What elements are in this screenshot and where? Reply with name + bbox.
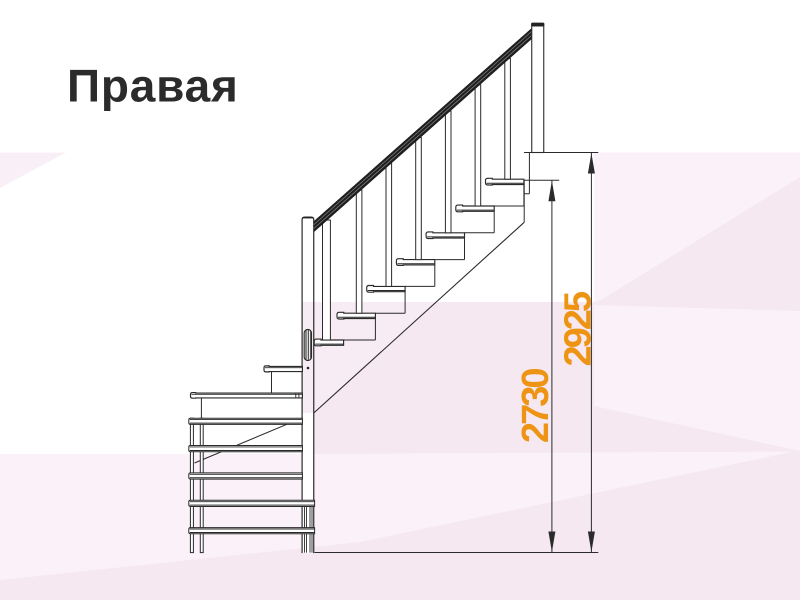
svg-text:2730: 2730	[515, 369, 557, 443]
svg-text:2925: 2925	[557, 291, 599, 366]
svg-text:Правая: Правая	[67, 59, 239, 111]
